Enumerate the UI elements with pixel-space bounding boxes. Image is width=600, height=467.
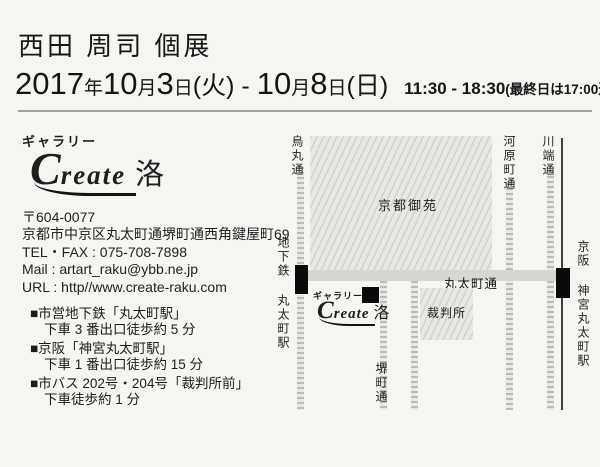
keihan-station-label: 京阪 神宮丸太町駅 [577,240,589,368]
gallery-logo: Create洛 [30,146,210,202]
date-day1: 3 [156,66,173,101]
street-address: 京都市中京区丸太町通堺町通西角鍵屋町69 [22,226,290,243]
map-gallery-logo: Create洛 [317,298,397,330]
kawabata-street-label: 川端通 [542,135,554,177]
website-url: URL : http//www.create-raku.com [22,279,290,296]
access-item-bus: ■市バス 202号・204号「裁判所前」 下車徒歩約 1 分 [30,376,249,407]
exhibition-dates: 2017年10月3日(火)-10月8日(日)11:30 - 18:30(最終日は… [15,66,600,102]
logo-kanji: 洛 [135,159,164,191]
kawabata-street [547,171,554,410]
marutamachi-street [296,270,562,281]
subway-station-marker [295,265,308,294]
courthouse-label: 裁判所 [427,304,466,321]
date-year-unit: 年 [84,78,103,99]
access-directions: ■市営地下鉄「丸太町駅」 下車 3 番出口徒歩約 5 分 ■京阪「神宮丸太町駅」… [30,306,249,412]
email: Mail : artart_raku@ybb.ne.jp [22,261,290,278]
logo-swash-underline [319,317,375,326]
header-divider [18,110,592,112]
unnamed-street [411,281,418,410]
access-item-keihan: ■京阪「神宮丸太町駅」 下車 1 番出口徒歩約 15 分 [30,341,249,372]
postal-code: 〒604-0077 [22,209,290,226]
date-day1-unit: 日 [174,78,193,99]
date-weekday2: (日) [347,72,389,100]
opening-hours: 11:30 - 18:30(最終日は17:00迄) [404,81,600,98]
karasuma-street-label: 烏丸通 [291,135,303,177]
access-item-subway: ■市営地下鉄「丸太町駅」 下車 3 番出口徒歩約 5 分 [30,306,249,337]
date-weekday1: (火) [193,72,235,100]
kyoto-gyoen-label: 京都御苑 [378,195,438,214]
access-detail: 下車 1 番出口徒歩約 15 分 [30,357,249,373]
date-month2: 10 [257,66,291,101]
access-head: ■市バス 202号・204号「裁判所前」 [30,376,249,392]
kawaramachi-street [506,183,513,410]
hours-range: 11:30 - 18:30 [404,79,505,98]
keihan-station-marker [556,268,570,298]
date-day2-unit: 日 [327,78,346,99]
sakaimachi-street-label: 堺町通 [375,362,387,404]
date-month1: 10 [103,66,137,101]
tel-fax: TEL・FAX : 075-708-7898 [22,244,290,261]
date-month2-unit: 月 [291,78,310,99]
access-head: ■京阪「神宮丸太町駅」 [30,341,249,357]
kawaramachi-street-label: 河原町通 [503,135,515,191]
date-year: 2017 [15,66,84,101]
contact-block: 〒604-0077 京都市中京区丸太町通堺町通西角鍵屋町69 TEL・FAX :… [22,209,290,296]
logo-kanji: 洛 [374,305,390,322]
subway-station-label: 地下鉄 丸太町駅 [277,236,289,350]
date-day2: 8 [310,66,327,101]
exhibition-title: 西田 周司 個展 [18,26,212,63]
access-head: ■市営地下鉄「丸太町駅」 [30,306,249,322]
access-detail: 下車徒歩約 1 分 [30,392,249,408]
postcard: 西田 周司 個展 2017年10月3日(火)-10月8日(日)11:30 - 1… [0,0,600,467]
access-detail: 下車 3 番出口徒歩約 5 分 [30,322,249,338]
hours-last-day-note: (最終日は17:00迄) [505,82,600,97]
date-month1-unit: 月 [137,78,156,99]
date-dash: - [241,72,249,100]
